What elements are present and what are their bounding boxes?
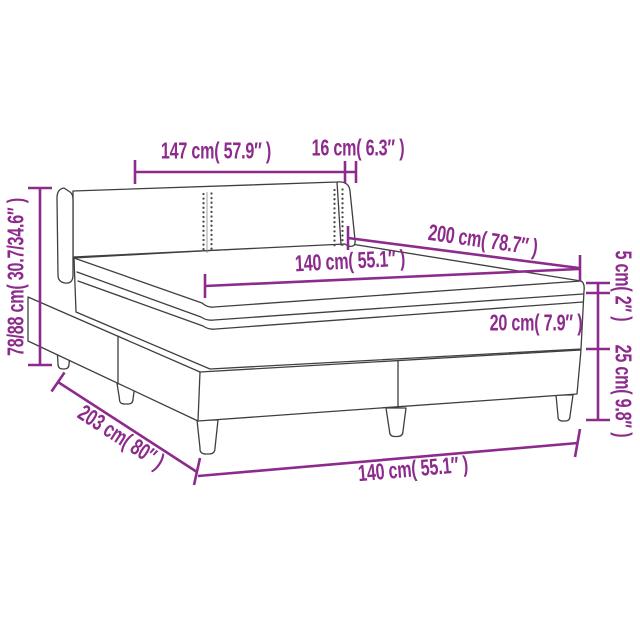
dim-label-wing-depth: 16 cm( 6.3″ ) [312,135,405,162]
dim-label-mattress-height: 20 cm( 7.9″ ) [490,310,583,337]
dim-label-base-height: 25 cm( 9.8″ ) [610,345,637,438]
dim-label-headboard-height: 78/88 cm( 30.7/34.6″ ) [3,198,30,356]
dim-label-mattress-width: 140 cm( 55.1″ ) [294,245,405,278]
dim-label-headboard-width: 147 cm( 57.9″ ) [161,138,271,165]
dim-label-topper-height: 5 cm( 2″ ) [610,251,637,322]
bed-dimension-diagram: 147 cm( 57.9″ ) 16 cm( 6.3″ ) 78/88 cm( … [0,0,640,640]
headboard-left-wing [57,188,73,283]
